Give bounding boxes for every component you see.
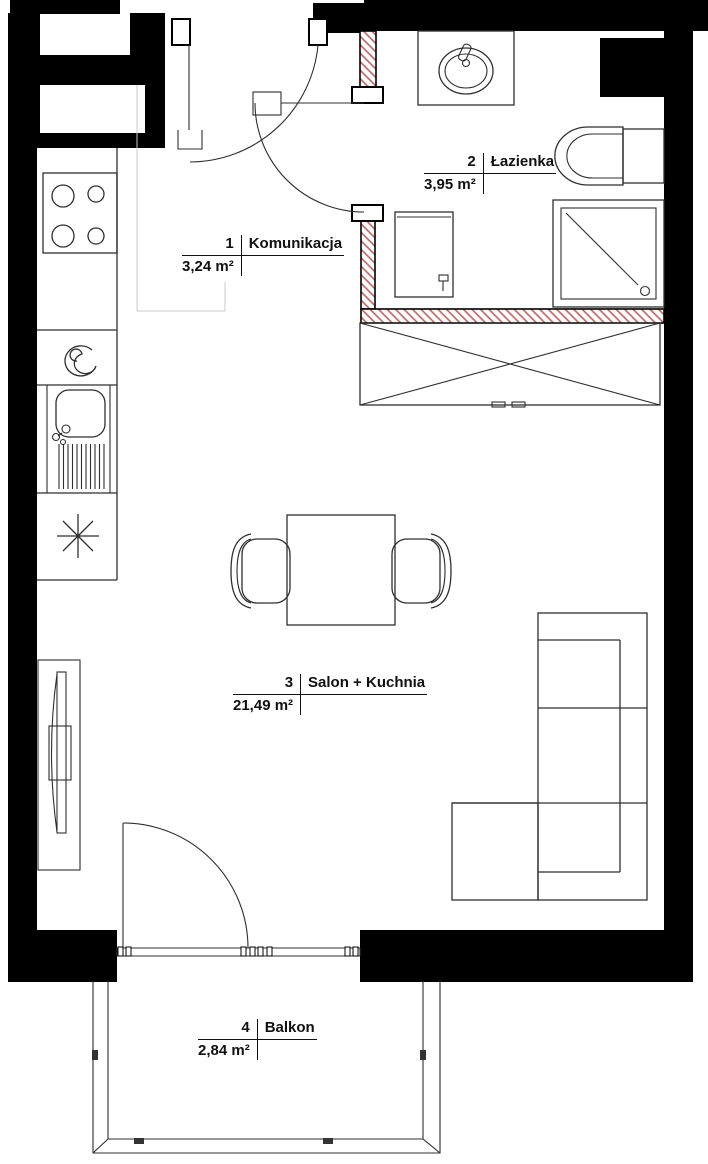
room-area: 3,95 m²	[424, 174, 483, 194]
room-number: 2	[424, 153, 483, 174]
chair-right-icon	[392, 534, 451, 608]
label-divider	[483, 174, 556, 194]
sofa-icon	[452, 613, 647, 900]
room-area: 21,49 m²	[233, 695, 300, 715]
room-number: 3	[233, 674, 300, 695]
room-label-lazienka: 2 Łazienka 3,95 m²	[424, 153, 556, 194]
chair-left-icon	[231, 534, 290, 608]
stove-icon	[43, 173, 117, 253]
toilet-icon	[555, 127, 664, 185]
radiator-icon	[38, 660, 80, 870]
wardrobe-icon	[360, 323, 660, 407]
label-divider	[241, 256, 344, 276]
spiral-symbol-icon	[65, 346, 96, 376]
room-name: Łazienka	[483, 153, 556, 174]
bathroom-sink-icon	[418, 31, 514, 105]
room-name: Salon + Kuchnia	[300, 674, 427, 695]
floor-plan-drawing	[0, 0, 708, 1164]
kitchen-counter	[37, 148, 117, 580]
washing-machine-icon	[395, 212, 453, 297]
room-number: 4	[198, 1019, 257, 1040]
walls	[8, 0, 708, 982]
asterisk-symbol-icon	[57, 514, 99, 558]
label-divider	[300, 695, 427, 715]
room-label-salon-kuchnia: 3 Salon + Kuchnia 21,49 m²	[233, 674, 427, 715]
room-name: Komunikacja	[241, 235, 344, 256]
shower-icon	[553, 200, 664, 307]
balcony-door-icon	[123, 823, 248, 948]
balcony-window-icon	[117, 947, 360, 956]
room-label-balkon: 4 Balkon 2,84 m²	[198, 1019, 317, 1060]
room-area: 3,24 m²	[182, 256, 241, 276]
balcony-railing	[92, 981, 440, 1153]
room-name: Balkon	[257, 1019, 317, 1040]
dining-table-icon	[287, 515, 395, 625]
room-area: 2,84 m²	[198, 1040, 257, 1060]
room-label-komunikacja: 1 Komunikacja 3,24 m²	[182, 235, 344, 276]
kitchen-sink-icon	[47, 385, 110, 493]
room-number: 1	[182, 235, 241, 256]
label-divider	[257, 1040, 317, 1060]
floor-plan: 1 Komunikacja 3,24 m² 2 Łazienka 3,95 m²…	[0, 0, 708, 1164]
door-jambs	[172, 19, 383, 221]
bathroom-door-icon	[253, 92, 364, 212]
